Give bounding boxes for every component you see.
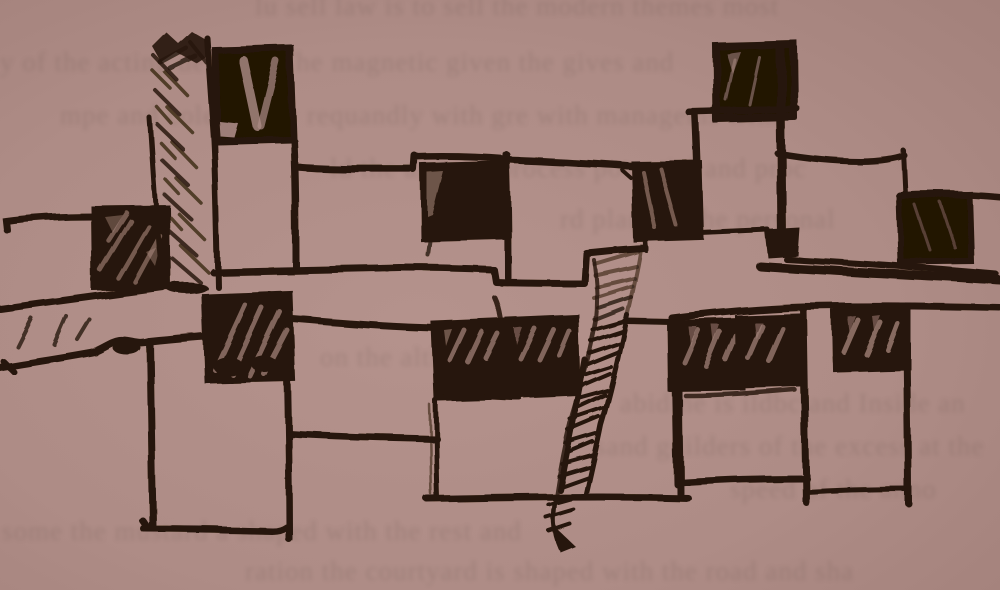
svg-text:lu sell law is to sell the mod: lu sell law is to sell the modern themes… — [255, 0, 779, 21]
svg-text:ration the courtyard is shaped: ration the courtyard is shaped with the … — [245, 556, 854, 586]
svg-text:sand guilders of the excess at: sand guilders of the excess at the — [595, 431, 984, 461]
svg-text:y of the acting definels The m: y of the acting definels The magnetic gi… — [0, 47, 674, 77]
